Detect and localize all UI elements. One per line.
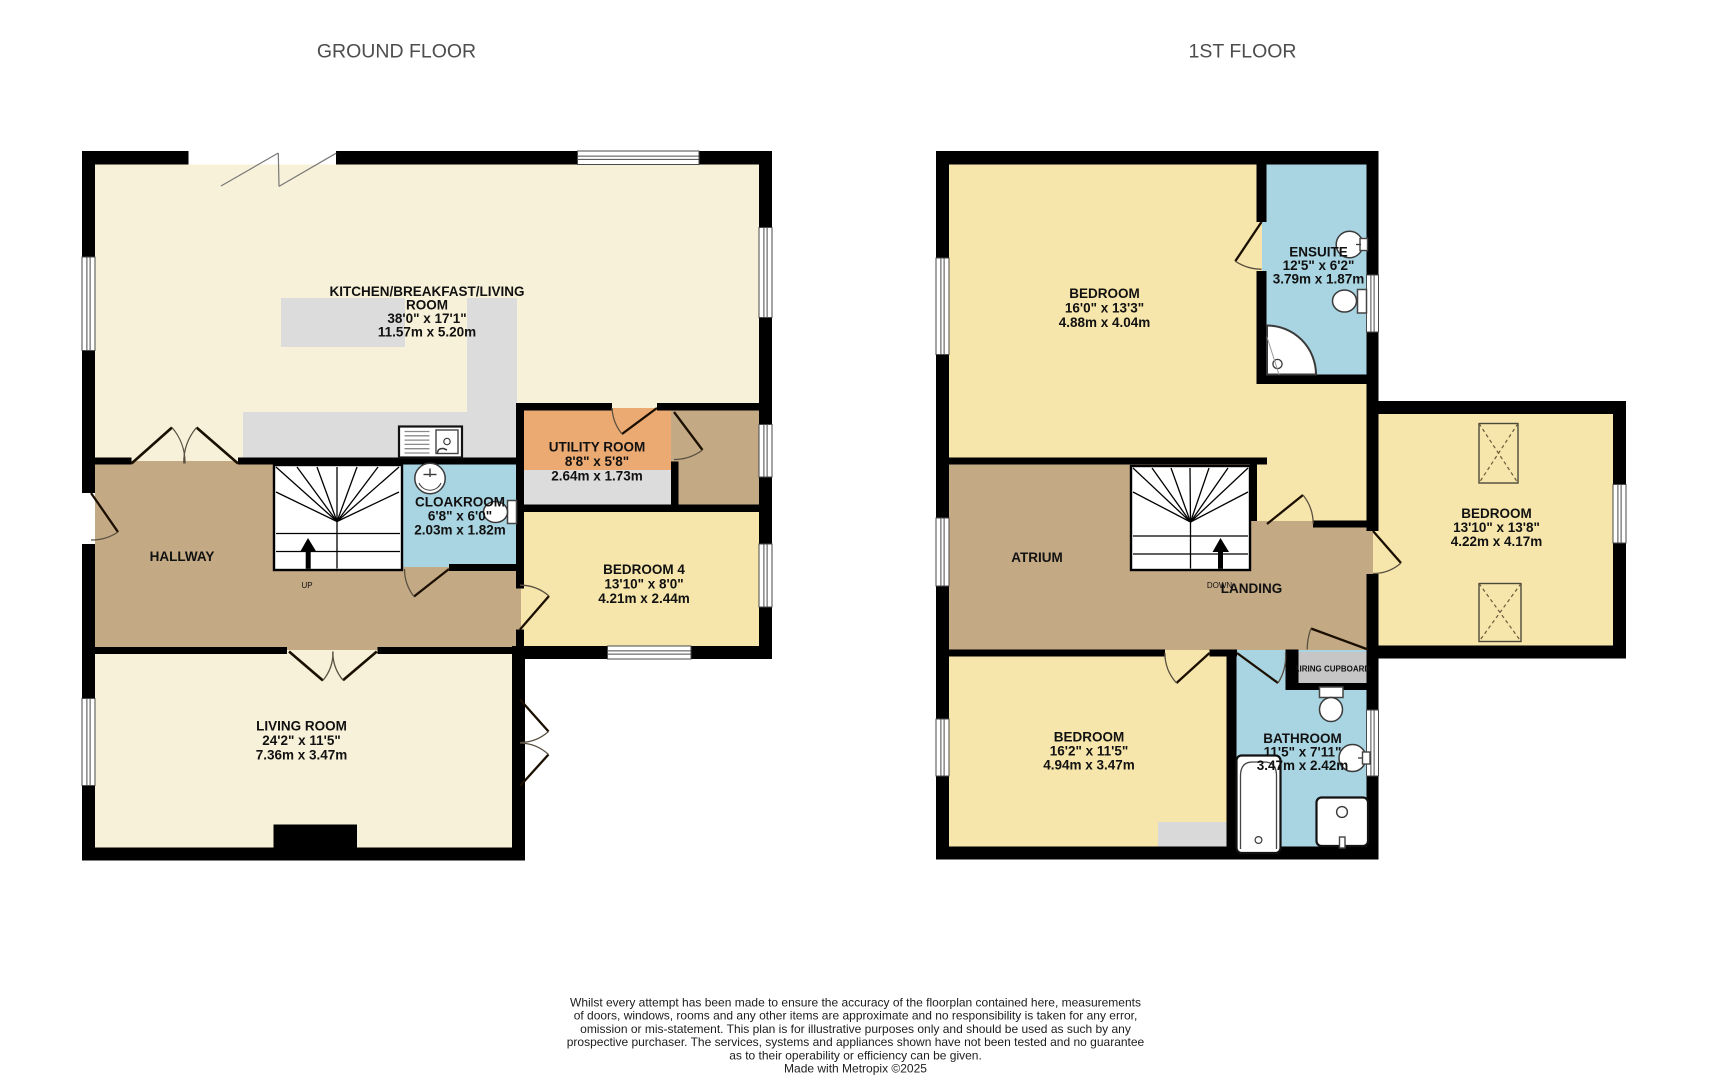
svg-text:of doors, windows, rooms and a: of doors, windows, rooms and any other i… [574,1009,1138,1023]
svg-text:2.03m x 1.82m: 2.03m x 1.82m [414,523,506,538]
svg-text:7.36m x 3.47m: 7.36m x 3.47m [256,748,348,763]
svg-text:GROUND FLOOR: GROUND FLOOR [317,41,476,63]
svg-text:4.94m x 3.47m: 4.94m x 3.47m [1043,758,1135,773]
svg-text:3.47m x 2.42m: 3.47m x 2.42m [1257,758,1349,773]
svg-text:ATRIUM: ATRIUM [1011,550,1063,565]
svg-text:13'10" x 13'8": 13'10" x 13'8" [1453,520,1540,535]
svg-text:CLOAKROOM: CLOAKROOM [415,495,505,510]
svg-text:16'2" x 11'5": 16'2" x 11'5" [1050,744,1129,759]
svg-text:24'2" x 11'5": 24'2" x 11'5" [262,733,341,748]
svg-text:6'8" x 6'0": 6'8" x 6'0" [428,509,492,524]
svg-text:4.22m x 4.17m: 4.22m x 4.17m [1451,534,1543,549]
svg-text:3.79m x 1.87m: 3.79m x 1.87m [1273,272,1365,287]
svg-text:UTILITY ROOM: UTILITY ROOM [549,440,646,455]
svg-text:11.57m x 5.20m: 11.57m x 5.20m [378,325,476,340]
svg-text:8'8" x 5'8": 8'8" x 5'8" [565,454,629,469]
svg-text:2.64m x 1.73m: 2.64m x 1.73m [551,469,643,484]
svg-text:4.88m x 4.04m: 4.88m x 4.04m [1059,315,1151,330]
svg-text:LIVING ROOM: LIVING ROOM [256,719,347,734]
svg-text:1ST FLOOR: 1ST FLOOR [1188,41,1296,63]
svg-text:BEDROOM: BEDROOM [1461,506,1532,521]
svg-text:UP: UP [301,581,312,590]
svg-text:prospective purchaser. The ser: prospective purchaser. The services, sys… [567,1035,1145,1049]
svg-text:BEDROOM: BEDROOM [1054,730,1125,745]
svg-text:13'10" x 8'0": 13'10" x 8'0" [604,577,683,592]
svg-text:BEDROOM 4: BEDROOM 4 [603,562,685,577]
svg-text:LANDING: LANDING [1221,581,1283,596]
svg-text:BEDROOM: BEDROOM [1069,286,1140,301]
svg-text:omission or mis-statement. Thi: omission or mis-statement. This plan is … [580,1022,1131,1036]
svg-text:AIRING CUPBOARD: AIRING CUPBOARD [1294,665,1371,674]
svg-text:16'0" x 13'3": 16'0" x 13'3" [1065,301,1144,316]
svg-text:Whilst every attempt has been: Whilst every attempt has been made to en… [570,996,1141,1010]
svg-text:4.21m x 2.44m: 4.21m x 2.44m [598,591,690,606]
svg-text:as to their operability or eff: as to their operability or efficiency ca… [729,1048,982,1062]
svg-text:Made with Metropix ©2025: Made with Metropix ©2025 [784,1062,927,1076]
svg-text:HALLWAY: HALLWAY [150,549,215,564]
